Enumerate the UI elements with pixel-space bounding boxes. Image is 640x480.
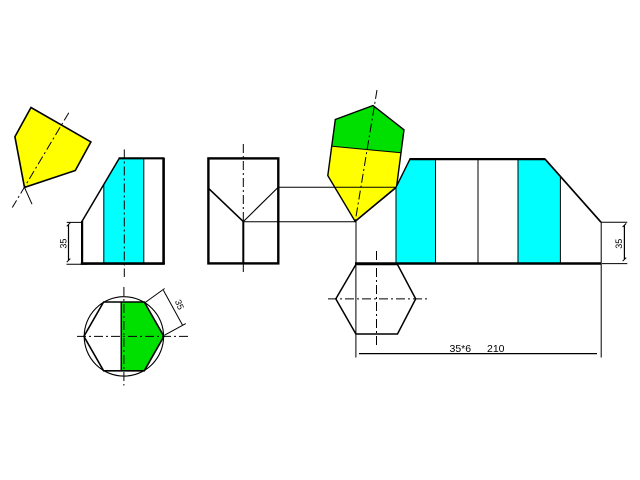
svg-text:35: 35 xyxy=(59,239,69,249)
svg-text:35*6: 35*6 xyxy=(450,343,472,355)
svg-text:210: 210 xyxy=(487,343,505,355)
svg-text:35: 35 xyxy=(173,298,186,311)
svg-text:35: 35 xyxy=(614,239,624,249)
